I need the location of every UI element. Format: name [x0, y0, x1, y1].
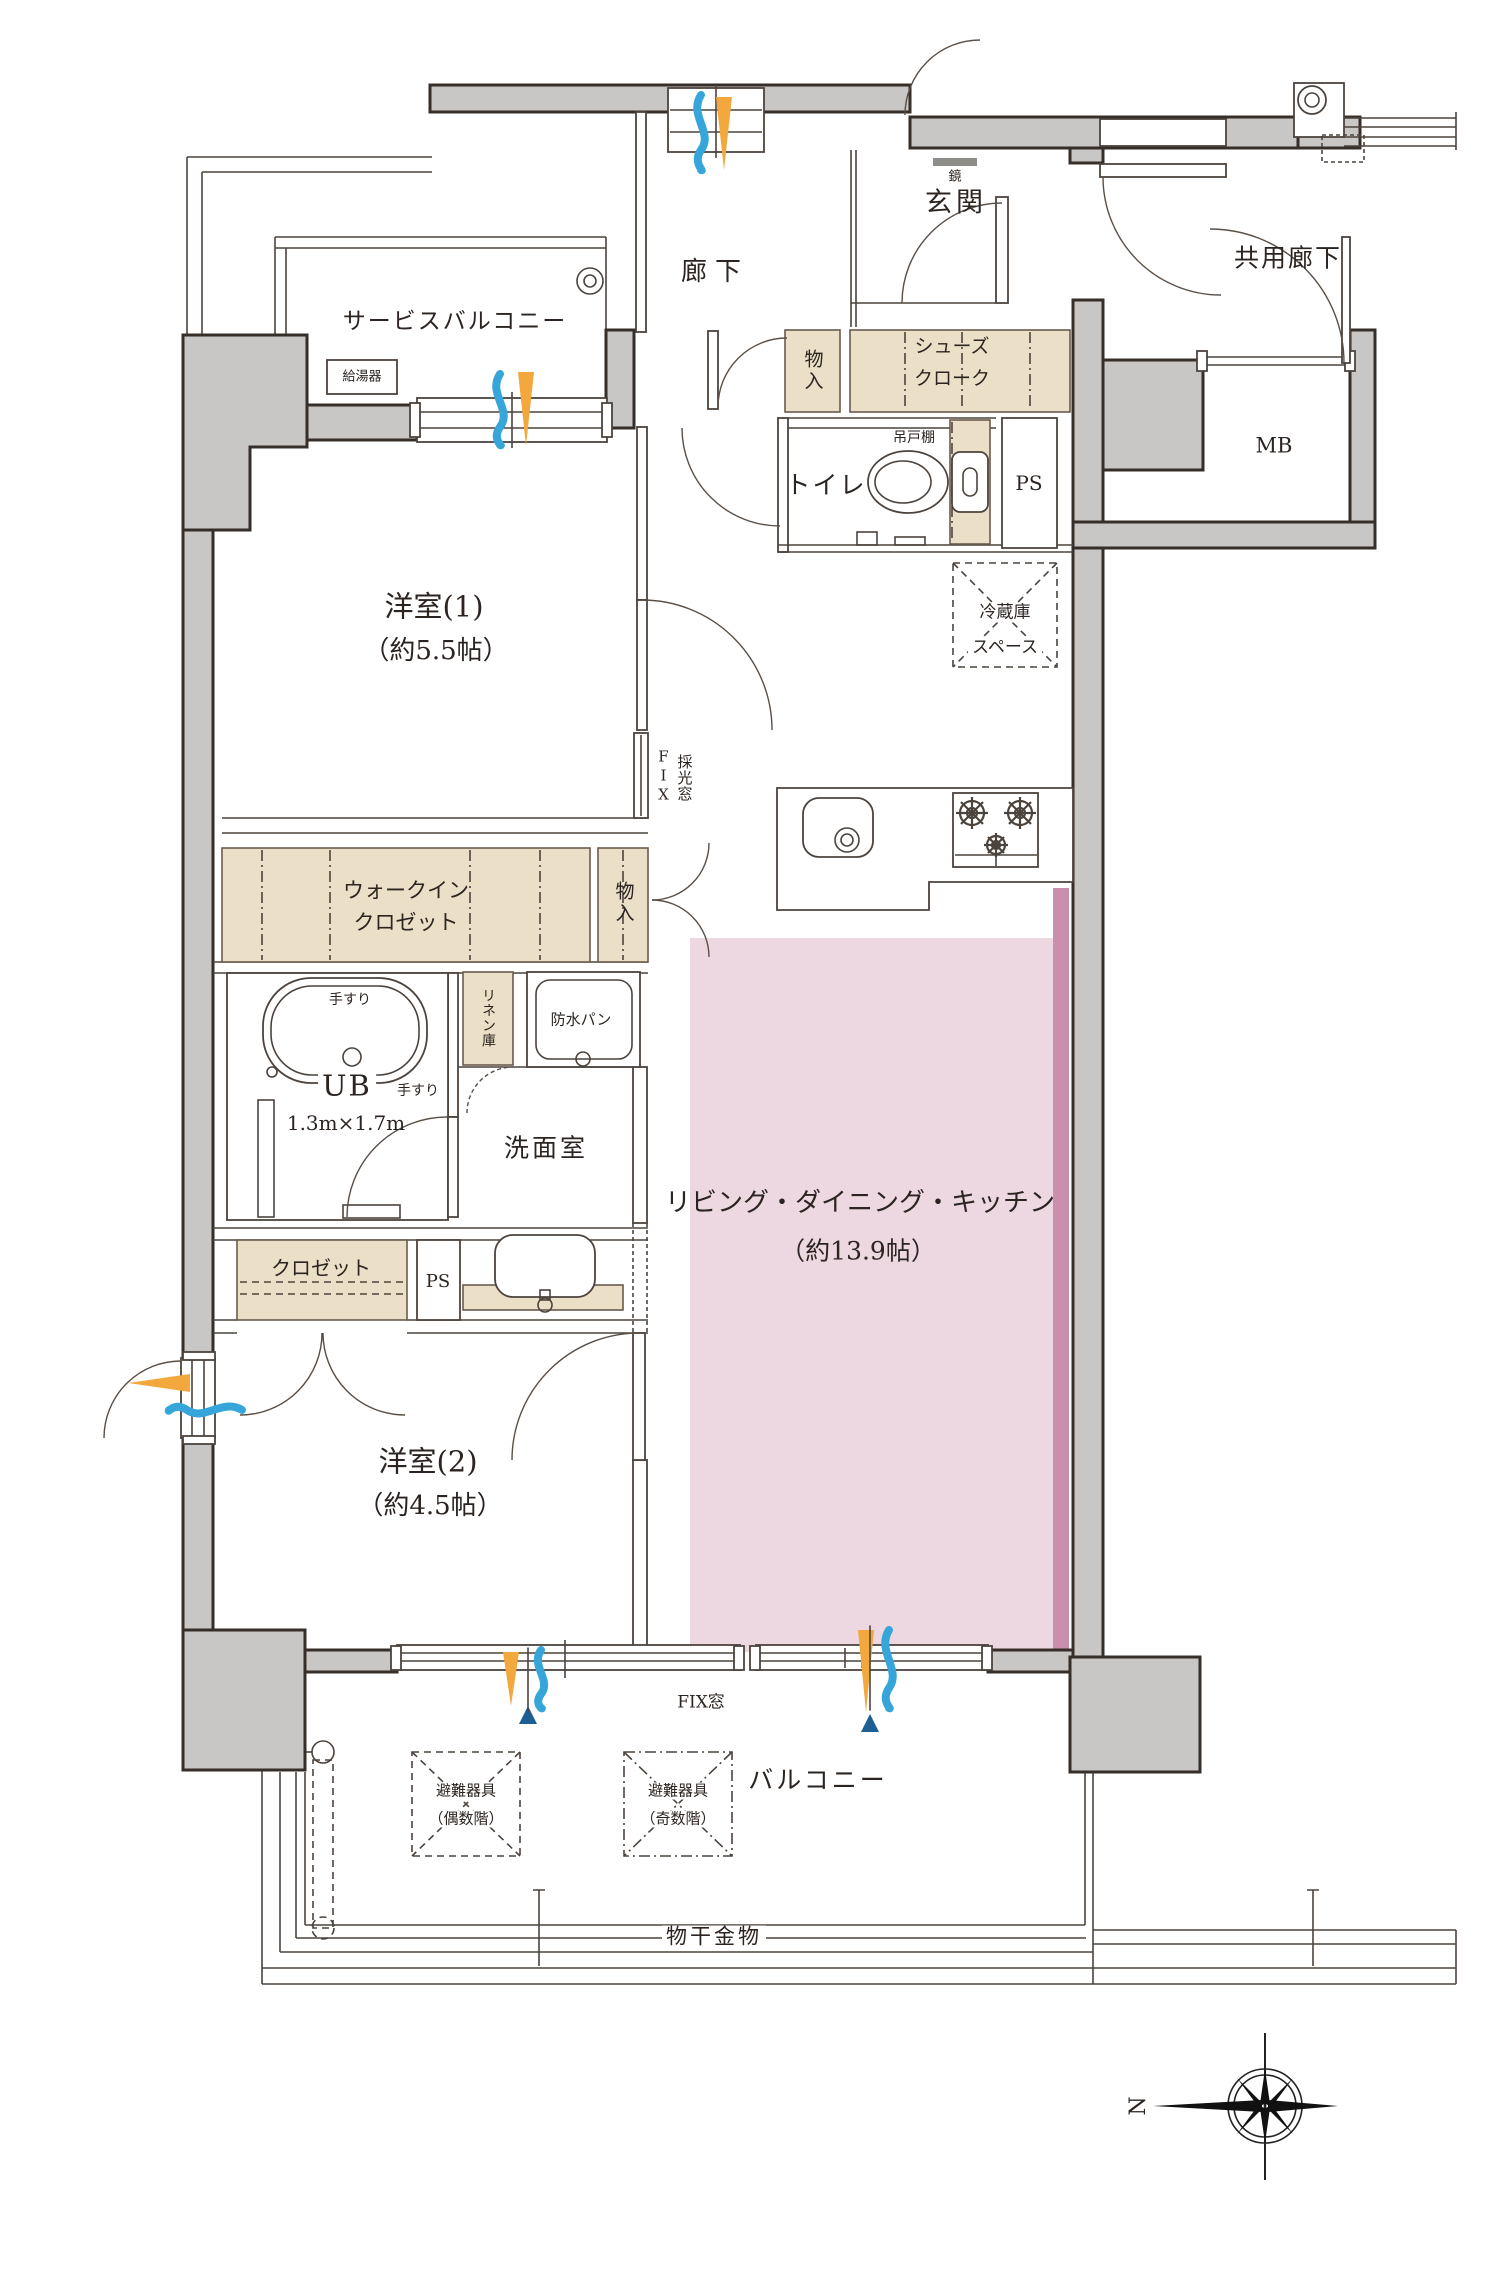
kitchen-fixtures	[777, 788, 1073, 910]
fix-light-window	[634, 733, 648, 818]
corridor-top-window	[668, 85, 764, 158]
yoshitsu2-west-window	[104, 1352, 215, 1444]
monoiri-kitchen-label: 物入	[614, 881, 633, 925]
south-window-1	[391, 1640, 744, 1678]
yoshitsu1-door	[637, 600, 772, 730]
shoes-cloak-label-1: シューズ	[914, 338, 989, 357]
yoshitsu1-label: 洋室(1)	[384, 593, 483, 622]
drain-pipe	[305, 1741, 334, 1939]
ldk-floor-highlight	[690, 888, 1069, 1652]
water-heater-label: 給湯器	[338, 370, 385, 385]
ps-lower-label: PS	[426, 1273, 450, 1291]
alcove-door-arc	[905, 40, 980, 115]
evac-even-label-1: 避難器具	[432, 1783, 500, 1800]
handrail-side-label: 手すり	[393, 1083, 443, 1099]
light-window-vertical-label: 採光窓	[677, 754, 692, 802]
toilet-label: トイレ	[785, 473, 866, 498]
floorplan: サービスバルコニー 給湯器 廊下 玄関 鏡 共用廊下 物入 シューズ クローク …	[0, 0, 1500, 2288]
balcony-label: バルコニー	[748, 1768, 888, 1793]
wic-label-2: クロゼット	[354, 913, 459, 934]
shoes-cloak-label-2: クローク	[914, 370, 990, 389]
unit-bath-label: UB	[318, 1071, 376, 1102]
ldk-label: リビング・ダイニング・キッチン	[665, 1190, 1055, 1216]
washer-pan-label: 防水パン	[547, 1012, 616, 1029]
service-balcony-window	[410, 392, 612, 448]
handrail-top-label: 手すり	[325, 992, 375, 1008]
monoiri-hall-label: 物入	[803, 349, 822, 393]
evac-odd-label-2: （奇数階）	[636, 1811, 719, 1828]
washroom-door-arc	[467, 1067, 513, 1113]
evacuation-hatch-odd	[624, 1752, 732, 1856]
corridor-label: 廊下	[681, 259, 749, 285]
yoshitsu2-label: 洋室(2)	[378, 1448, 477, 1477]
linen-label: リネン庫	[481, 988, 495, 1048]
service-balcony-label: サービスバルコニー	[343, 311, 568, 334]
laundry-hardware-label: 物干金物	[662, 1926, 766, 1949]
hanging-cabinet-label: 吊戸棚	[889, 430, 939, 446]
stove	[953, 793, 1038, 867]
fix-mado-label: FIX窓	[677, 1695, 725, 1712]
entrance-label: 玄関	[925, 190, 987, 217]
compass-rose	[1153, 2033, 1338, 2180]
yoshitsu1-size-label: （約5.5帖）	[363, 638, 508, 664]
mirror-bar	[933, 158, 977, 166]
laundry-pole-bracket	[533, 1890, 1319, 1966]
closet-doors	[240, 1333, 405, 1415]
wic-label-1: ウォークイン	[343, 881, 469, 902]
ps-upper-label: PS	[1015, 473, 1042, 493]
monoiri-hall-door	[708, 331, 787, 409]
closet-label: クロゼット	[271, 1258, 371, 1278]
fridge-label-1: 冷蔵庫	[976, 604, 1035, 623]
washroom-label: 洗面室	[504, 1136, 588, 1161]
ldk-size-label: （約13.9帖）	[780, 1239, 936, 1264]
mirror-label: 鏡	[948, 171, 961, 184]
unit-bath-size-label: 1.3m×1.7m	[287, 1113, 405, 1133]
fix-window-vertical-label: FIX	[656, 748, 671, 805]
evac-even-label-2: （偶数階）	[424, 1811, 507, 1828]
evac-odd-label-1: 避難器具	[644, 1783, 712, 1800]
entrance-door	[1100, 119, 1226, 295]
closet-box	[237, 1240, 407, 1320]
toilet-door-arc	[682, 428, 780, 526]
yoshitsu2-size-label: （約4.5帖）	[357, 1493, 502, 1519]
fridge-label-2: スペース	[968, 639, 1042, 658]
evacuation-hatch-even	[412, 1752, 520, 1856]
compass-north-label: N	[1128, 2096, 1150, 2115]
mb-label: MB	[1256, 436, 1293, 457]
wic-box	[222, 848, 590, 962]
vanity	[463, 1235, 623, 1312]
yoshitsu2-door	[512, 1333, 645, 1460]
vent-pipe	[1294, 83, 1456, 162]
common-corridor-label: 共用廊下	[1234, 246, 1342, 271]
